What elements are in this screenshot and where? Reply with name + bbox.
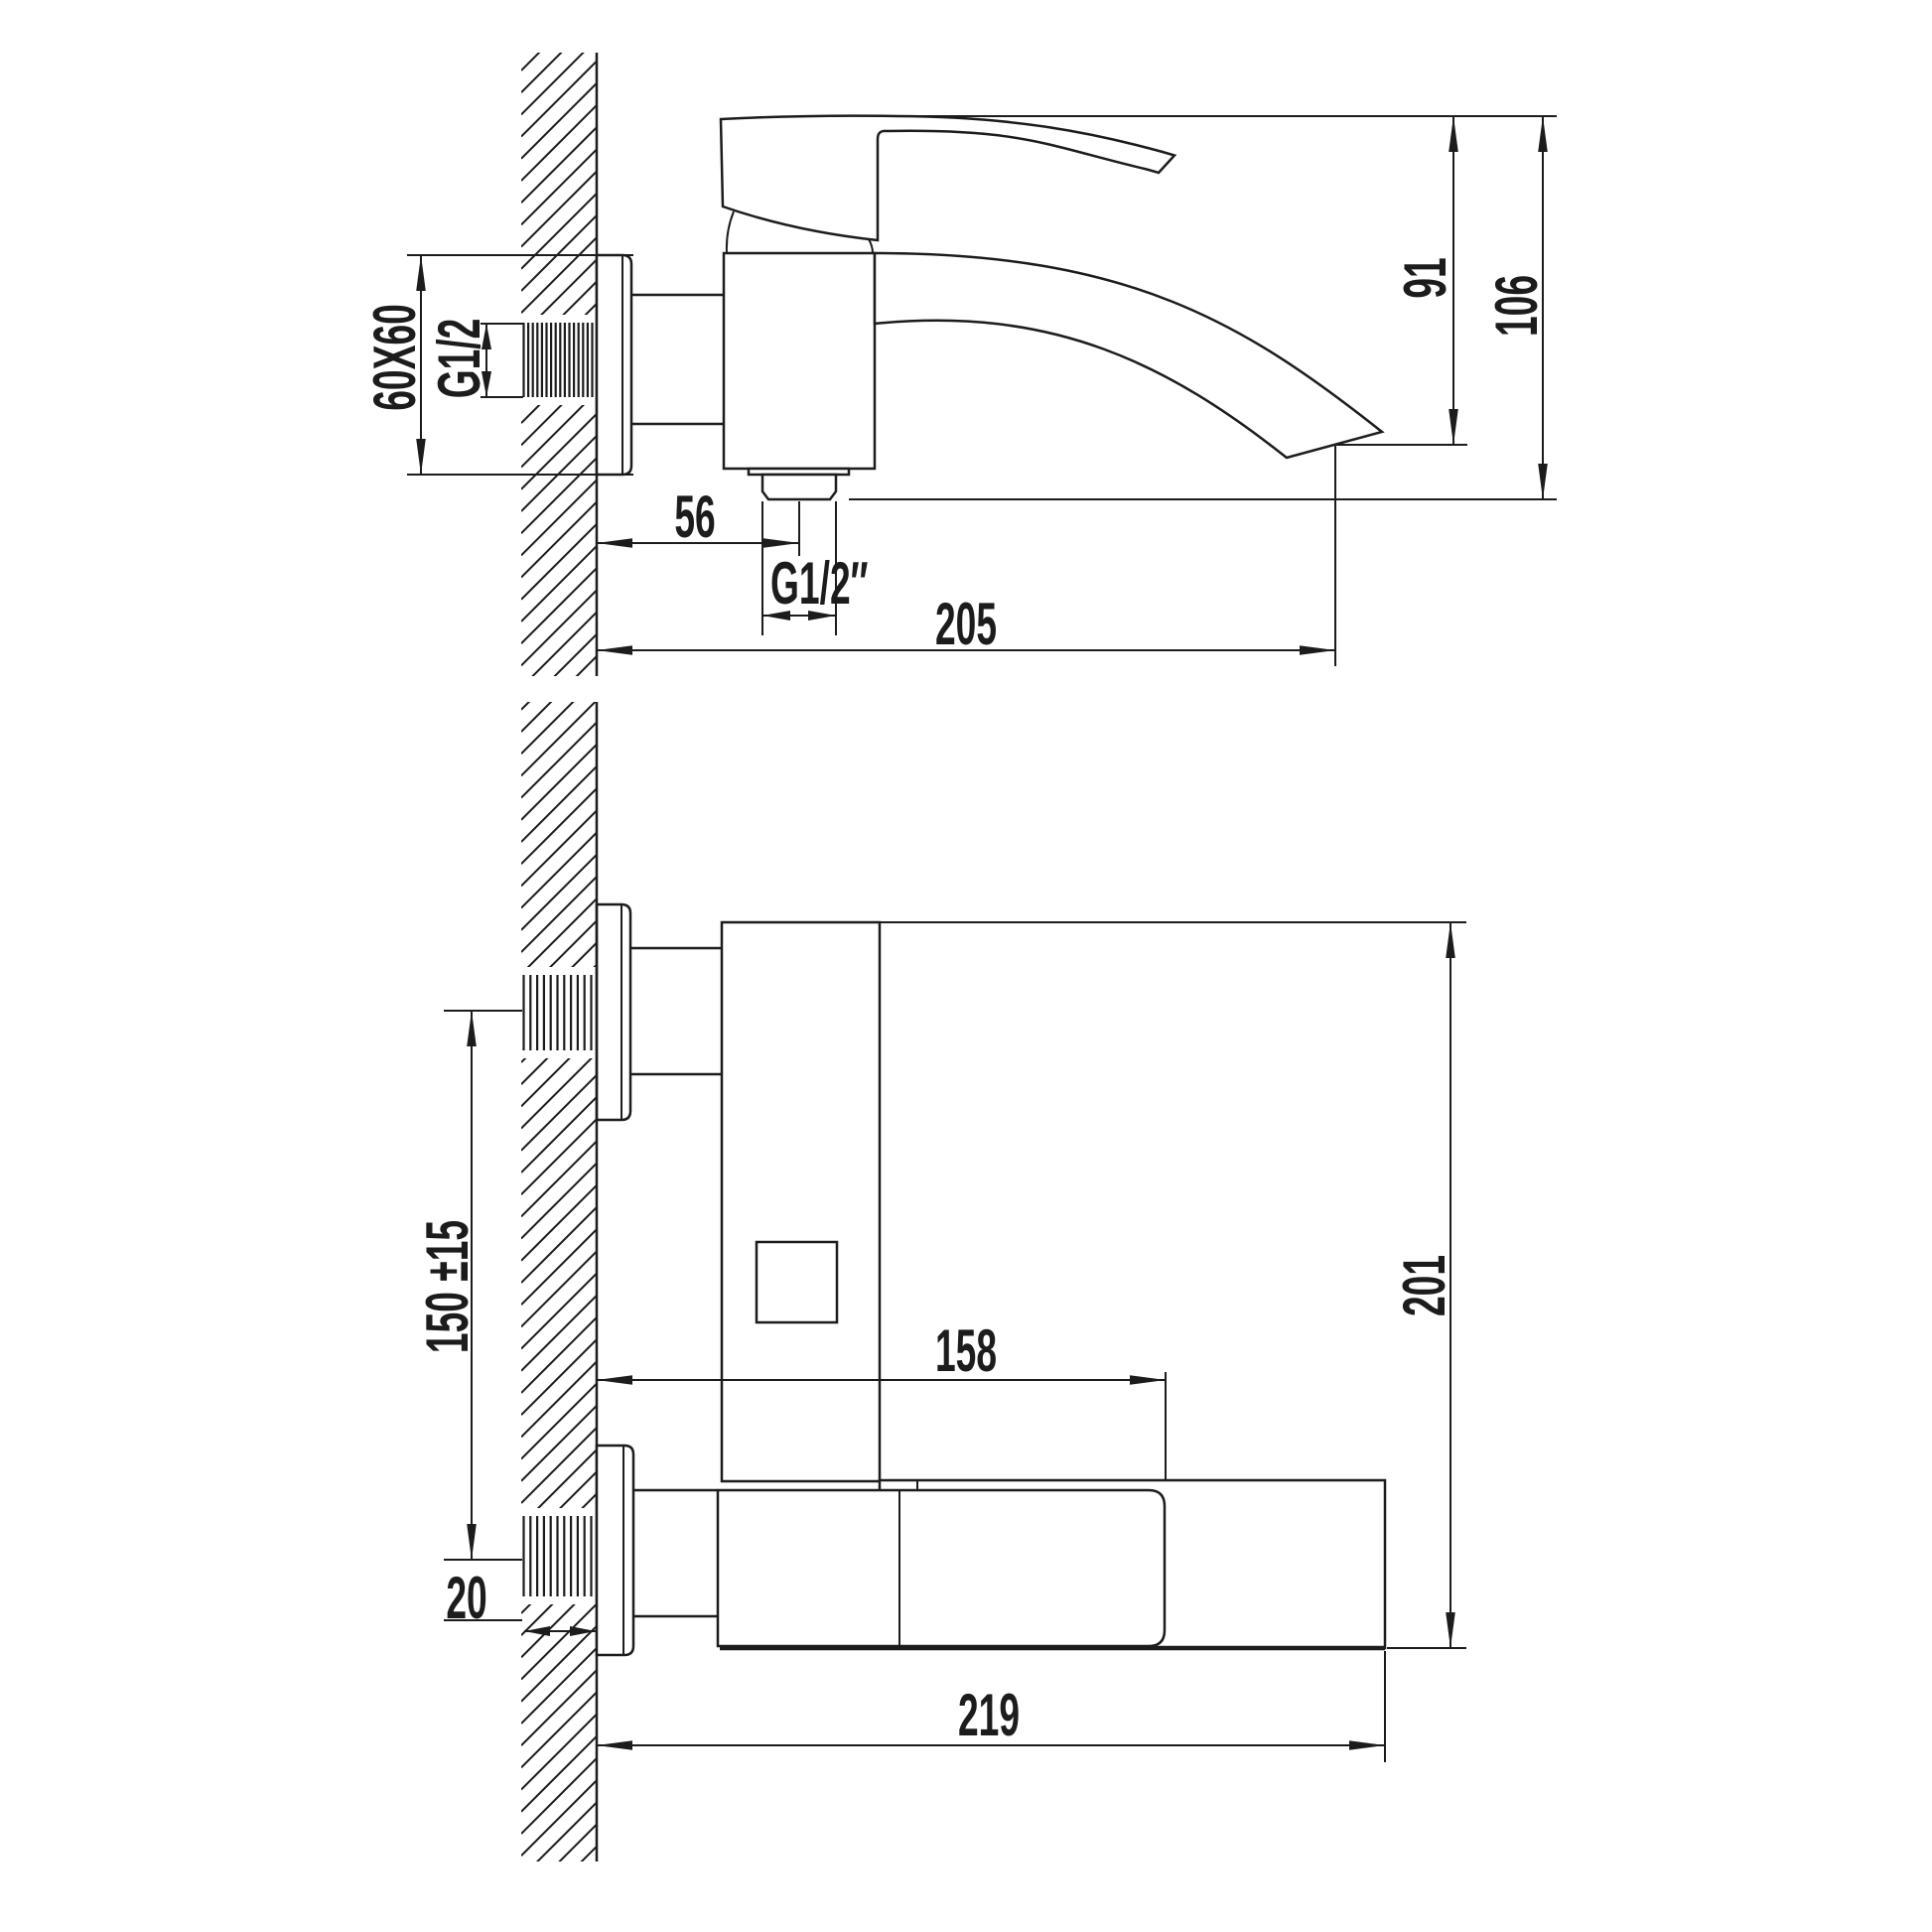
svg-text:G1/2: G1/2: [426, 319, 492, 399]
svg-text:91: 91: [1392, 257, 1458, 298]
svg-text:205: 205: [935, 591, 997, 657]
svg-text:201: 201: [1391, 1255, 1457, 1316]
svg-text:G1/2″: G1/2″: [770, 550, 868, 617]
svg-text:219: 219: [958, 1682, 1020, 1748]
svg-text:106: 106: [1483, 275, 1550, 337]
svg-text:60X60: 60X60: [361, 304, 428, 411]
svg-text:56: 56: [674, 483, 715, 550]
svg-text:20: 20: [446, 1565, 486, 1631]
svg-text:150 ±15: 150 ±15: [414, 1220, 481, 1353]
svg-text:158: 158: [935, 1317, 997, 1384]
